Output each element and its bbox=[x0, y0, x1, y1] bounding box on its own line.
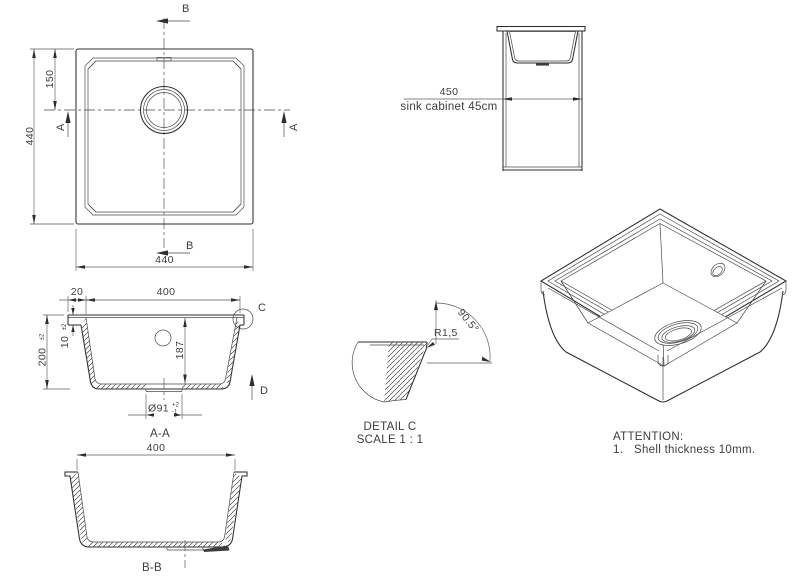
section-aa-label: A-A bbox=[150, 428, 170, 440]
bb-shell bbox=[65, 472, 247, 547]
sink-bowl-front bbox=[507, 31, 578, 66]
svg-text:440: 440 bbox=[24, 127, 36, 146]
overflow-hole-section bbox=[155, 330, 171, 346]
angle-label: 90.5° bbox=[455, 307, 481, 335]
dim-400-inner-width: 400 bbox=[86, 286, 240, 313]
floor-hatch-right bbox=[182, 384, 224, 389]
svg-text:D: D bbox=[260, 385, 269, 397]
drain-stub bbox=[536, 63, 549, 66]
isometric-view bbox=[541, 209, 786, 402]
svg-text:400: 400 bbox=[147, 442, 166, 454]
bb-hatch-floor bbox=[86, 542, 226, 547]
sink-outline bbox=[76, 49, 253, 224]
detail-ref-label: C bbox=[258, 302, 267, 314]
section-bb: 400 B-B bbox=[65, 442, 247, 574]
notes-heading: ATTENTION: bbox=[613, 431, 684, 443]
wall-hatch-left bbox=[81, 318, 96, 386]
svg-text:440: 440 bbox=[155, 254, 174, 266]
svg-text:20: 20 bbox=[71, 286, 83, 298]
svg-text:±2: ±2 bbox=[62, 323, 68, 330]
rim-inner-edge bbox=[85, 58, 244, 215]
dim-150-drain-offset: 150 bbox=[44, 49, 57, 110]
view-arrow-d: D bbox=[249, 374, 268, 400]
dim-450: 450 sink cabinet 45cm bbox=[400, 86, 582, 113]
dim-10-rim-thickness: ±2 10 bbox=[59, 305, 75, 348]
svg-text:-1: -1 bbox=[172, 410, 178, 416]
svg-text:10: 10 bbox=[59, 336, 71, 348]
svg-text:Ø91: Ø91 bbox=[148, 403, 169, 415]
detail-c-geometry bbox=[352, 342, 427, 402]
detail-c-title: DETAIL C bbox=[364, 421, 417, 433]
bowl-top-edge bbox=[88, 61, 241, 212]
dim-187-depth: 187 bbox=[174, 318, 187, 384]
svg-text:450: 450 bbox=[440, 86, 459, 98]
radius-label: R1,5 bbox=[434, 327, 458, 339]
notes: ATTENTION: 1. Shell thickness 10mm. bbox=[613, 431, 755, 456]
section-label-a-right: A bbox=[288, 123, 300, 131]
section-arrow-a-right: A bbox=[281, 111, 300, 137]
svg-text:187: 187 bbox=[174, 341, 186, 360]
cabinet-carcass bbox=[503, 31, 582, 171]
section-label-a-left: A bbox=[55, 123, 67, 131]
section-arrow-a-left: A bbox=[55, 111, 71, 137]
note-1-text: Shell thickness 10mm. bbox=[634, 444, 755, 456]
svg-text:±2: ±2 bbox=[40, 333, 46, 340]
corner-chamfers bbox=[88, 61, 241, 212]
inner-bowl-face bbox=[86, 318, 237, 385]
svg-text:+2: +2 bbox=[172, 403, 180, 409]
drawing-sheet: B B A A 440 bbox=[0, 0, 800, 579]
detail-c-scale: SCALE 1 : 1 bbox=[357, 434, 424, 446]
wall-hatch-right bbox=[226, 318, 240, 386]
dim-400-bb: 400 bbox=[77, 442, 235, 470]
section-label-b-top: B bbox=[182, 3, 190, 15]
section-bb-label: B-B bbox=[142, 562, 162, 574]
cabinet-caption: sink cabinet 45cm bbox=[400, 101, 497, 113]
dim-drain-diameter: Ø91 +2 -1 bbox=[128, 394, 202, 419]
sink-technical-drawing: B B A A 440 bbox=[0, 0, 800, 579]
cabinet-view: 450 sink cabinet 45cm bbox=[400, 27, 585, 172]
section-label-b-bottom: B bbox=[186, 240, 194, 252]
section-aa: 20 400 ±2 10 ±2 200 bbox=[37, 286, 269, 440]
detail-c-view: R1,5 90.5° DETAIL C SCALE 1 : 1 bbox=[352, 300, 492, 446]
countertop bbox=[497, 27, 585, 32]
radius-callout: R1,5 bbox=[427, 327, 460, 348]
section-arrow-b-top: B bbox=[156, 3, 190, 24]
top-view: B B A A 440 bbox=[24, 3, 300, 271]
dim-440-horizontal: 440 bbox=[76, 229, 253, 271]
outer-shell bbox=[81, 325, 240, 389]
note-1-number: 1. bbox=[613, 444, 623, 456]
svg-text:150: 150 bbox=[44, 70, 56, 89]
svg-text:200: 200 bbox=[37, 348, 49, 367]
svg-text:400: 400 bbox=[157, 286, 176, 298]
floor-hatch-left bbox=[95, 384, 146, 389]
